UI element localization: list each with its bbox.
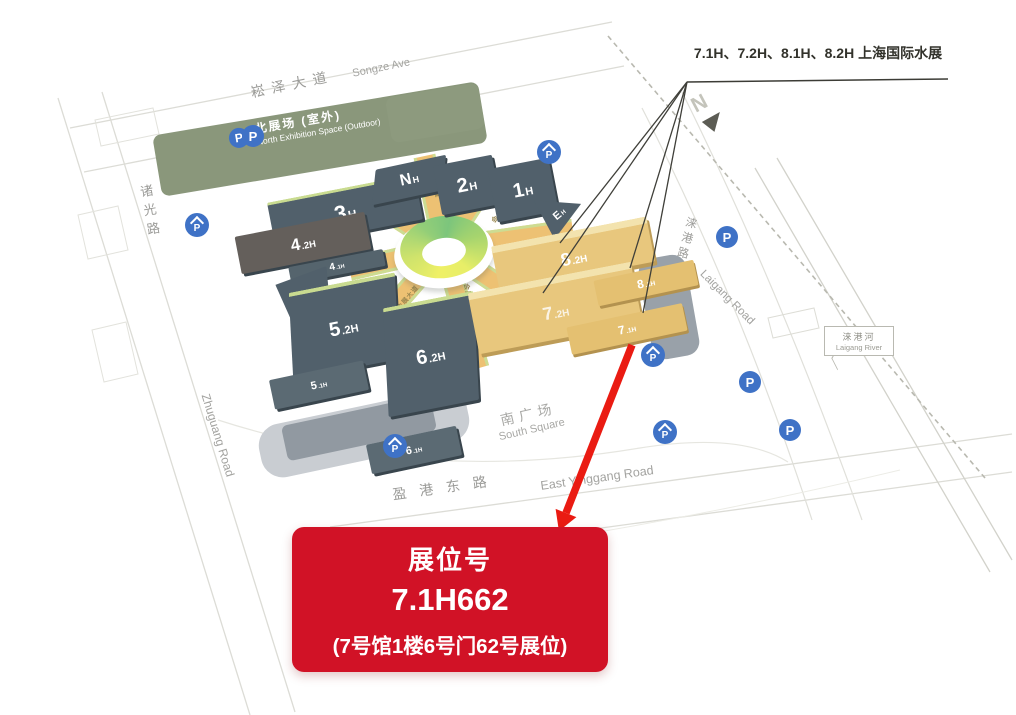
south-square-label: 南广场 South Square [493, 397, 566, 443]
building-outline [768, 308, 819, 338]
parking-icon: P [716, 226, 738, 248]
annotation-halls-text: 7.1H、7.2H、8.1H、8.2H 上海国际水展 [672, 43, 964, 63]
parking-garage-icon: P [653, 420, 677, 444]
building-outline [78, 206, 128, 259]
booth-card-title: 展位号 [408, 540, 492, 577]
parking-garage-icon: P [383, 434, 407, 458]
roof-caret-icon [646, 346, 660, 360]
road-label-songze-zh: 崧泽大道 [249, 66, 335, 102]
roof-caret-icon [542, 143, 556, 157]
road-label-laigang-en: Laigang Road [698, 268, 757, 327]
annotation-underline [687, 79, 948, 82]
river-label: 涞港河 Laigang River [824, 326, 894, 356]
laigang-road-line [682, 92, 862, 520]
road-label-zhuguang-en: Zhuguang Road [199, 392, 238, 478]
roof-caret-icon [190, 216, 204, 230]
annotation-leader-line [560, 82, 687, 243]
building-outline [92, 322, 138, 382]
road-label-zhuguang-zh: 诸光路 [135, 183, 164, 242]
parking-icon: P [739, 371, 761, 393]
laigang-river-line [755, 168, 990, 572]
booth-detail: (7号馆1楼6号门62号展位) [333, 629, 568, 659]
hall-6-2h: 6.2H [383, 291, 479, 417]
booth-card: 展位号 7.1H662 (7号馆1楼6号门62号展位) [292, 527, 608, 672]
booth-number: 7.1H662 [391, 582, 508, 618]
roof-caret-icon [388, 437, 402, 451]
parking-icon: P [242, 125, 264, 147]
laigang-river-line [777, 158, 1012, 560]
parking-garage-icon: P [641, 343, 665, 367]
building-outline [95, 108, 159, 146]
parking-garage-icon: P [537, 140, 561, 164]
road-label-yinggang-zh: 盈港东路 [391, 470, 501, 505]
road-label-songze-en: Songze Ave [351, 56, 411, 79]
parking-icon: P [779, 419, 801, 441]
road-label-yinggang-en: East Yinggang Road [540, 463, 655, 493]
parking-garage-icon: P [185, 213, 209, 237]
roof-caret-icon [658, 423, 672, 437]
road-label-laigang-zh: 涞港路 [672, 215, 699, 264]
